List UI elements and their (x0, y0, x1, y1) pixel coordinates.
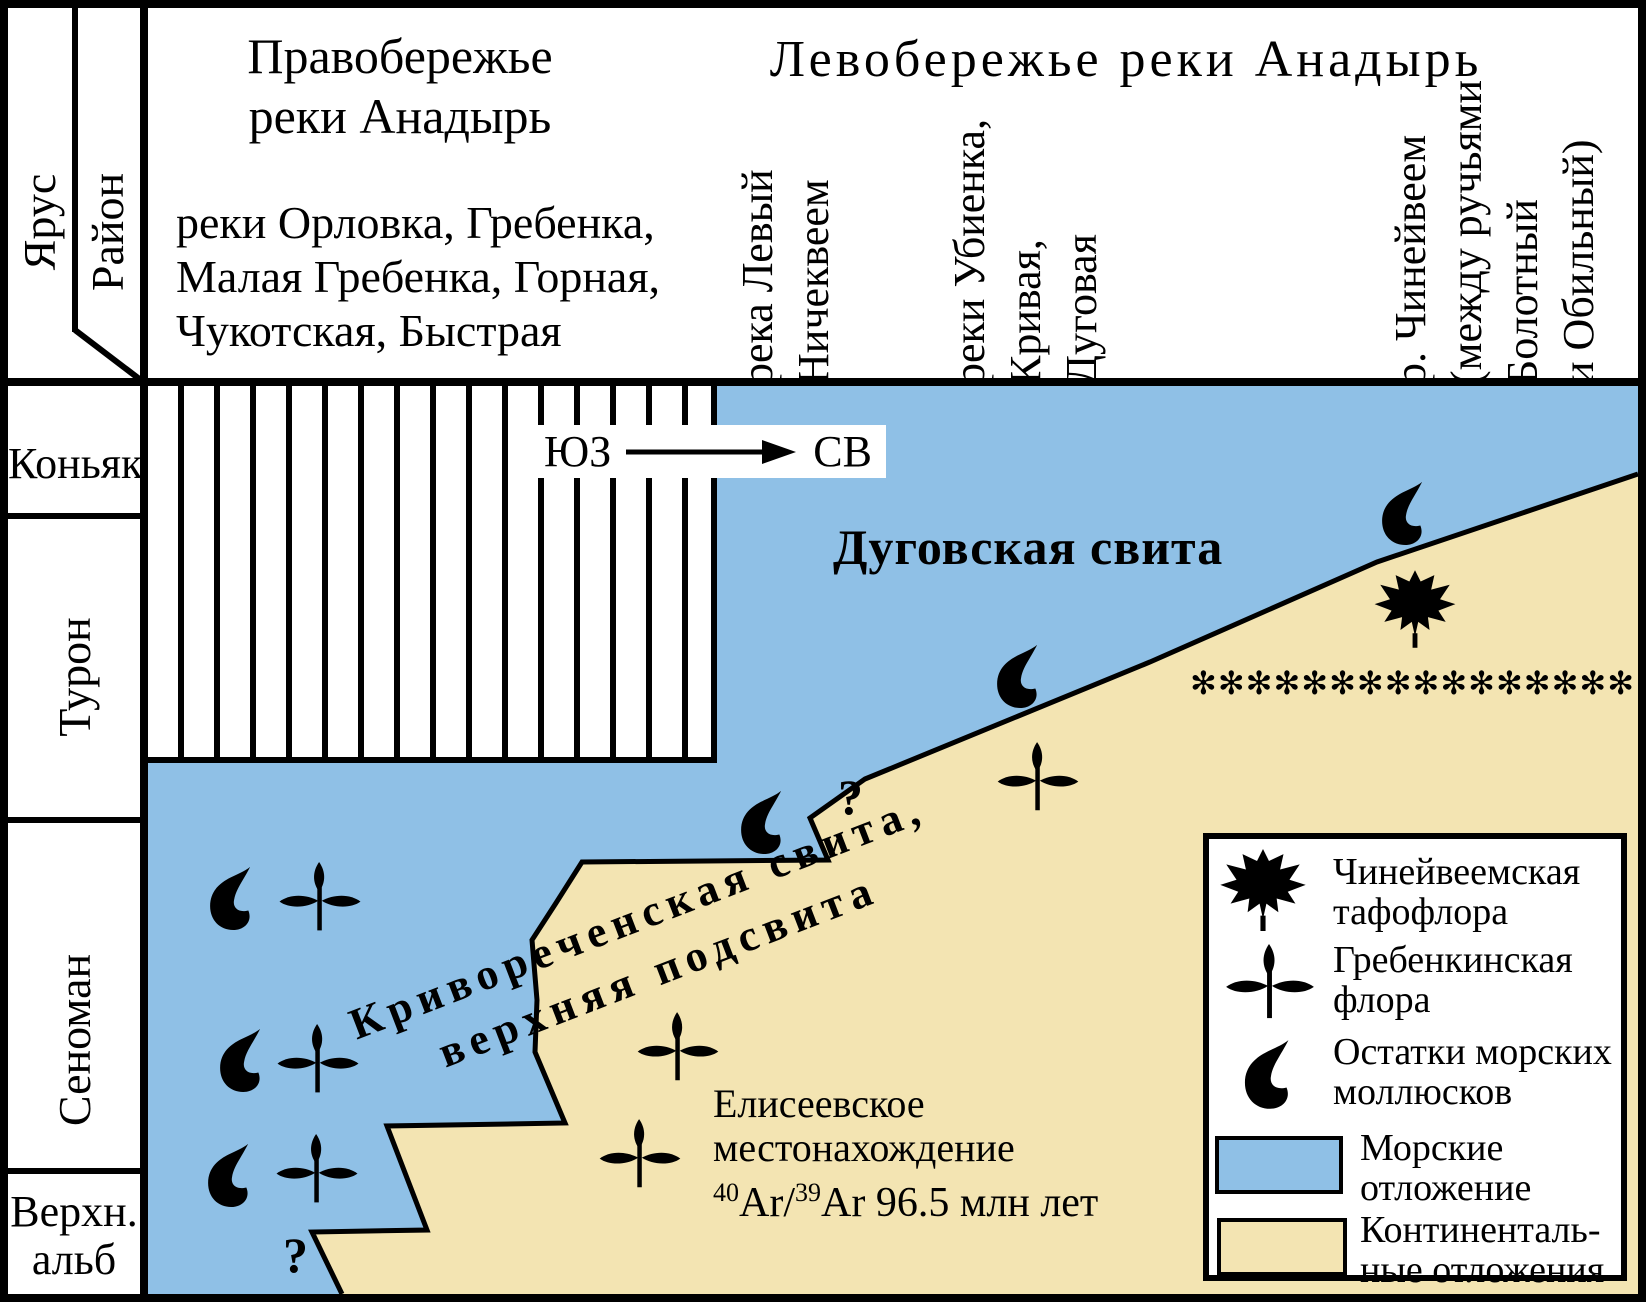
direction-from-label: ЮЗ (544, 426, 611, 477)
mollusk-icon (216, 1028, 274, 1092)
flora-icon (995, 742, 1081, 814)
right-arrow-icon (624, 436, 800, 468)
column-header-line: Ничеквеем (786, 135, 842, 385)
stage-label-line: альб (8, 1236, 140, 1284)
legend-label: Морские (1360, 1128, 1503, 1168)
mollusk-icon (1378, 481, 1436, 545)
direction-to-label: СВ (813, 426, 872, 477)
outer-border-bottom (0, 1294, 1646, 1302)
ar-age-sup1: 40 (713, 1178, 739, 1207)
right-bank-rivers: реки Орловка, Гребенка, Малая Гребенка, … (176, 196, 660, 358)
question-mark-lower: ? (283, 1226, 308, 1284)
right-bank-title: Правобережье реки Анадырь (160, 26, 640, 146)
column-header-line: р. Чинейвеем (1383, 75, 1439, 385)
legend-label: моллюсков (1333, 1072, 1512, 1112)
eliseevskoe-label: Елисеевское местонахождение (713, 1082, 1015, 1170)
right-bank-rivers-line2: Малая Гребенка, Горная, (176, 250, 660, 304)
mollusk-icon (993, 644, 1051, 708)
mollusk-icon (204, 1143, 262, 1207)
continental-swatch (1217, 1218, 1347, 1276)
stage-label-cenoman: Сеноман (48, 922, 98, 1158)
column-header-line: Болотный (1495, 75, 1551, 385)
stage-divider-3 (8, 1168, 140, 1174)
ar-age-base1: Ar/ (739, 1180, 795, 1226)
legend-label: ные отложения (1360, 1250, 1604, 1290)
stage-divider-2 (8, 817, 140, 823)
mollusk-icon (737, 790, 795, 854)
outer-border-top (0, 0, 1646, 8)
eliseevskoe-line1: Елисеевское (713, 1082, 1015, 1126)
flora-icon (269, 1134, 365, 1206)
flora-icon (272, 862, 368, 934)
column-header-chineyveem: р. Чинейвеем (между ручьями Болотный и О… (1383, 75, 1607, 385)
stage-label-konyak: Коньяк (8, 438, 140, 489)
legend-label: тафофлора (1333, 892, 1508, 932)
column-header-line: река Левый (730, 135, 786, 385)
legend-label: Остатки морских (1333, 1032, 1612, 1072)
stage-label-turon: Турон (48, 577, 98, 777)
column-header-line: Кривая, (998, 85, 1054, 385)
stage-label-verkhn-alb: Верхн. альб (8, 1188, 140, 1284)
column-header-line: Дуговая (1054, 85, 1110, 385)
ar-age-label: 40Ar/39Ar 96.5 млн лет (713, 1178, 1098, 1227)
mollusk-icon (206, 866, 264, 930)
column-header-line: и Обильный) (1551, 75, 1607, 385)
right-bank-rivers-line3: Чукотская, Быстрая (176, 304, 660, 358)
maple-leaf-icon (1211, 849, 1315, 931)
column-header-ubienka: реки Убиенка, Кривая, Дуговая (942, 85, 1110, 385)
yarus-column-label: Ярус (13, 142, 63, 302)
eliseevskoe-line2: местонахождение (713, 1126, 1015, 1170)
flora-icon (635, 1012, 721, 1084)
outer-border-right (1638, 0, 1646, 1302)
direction-band: ЮЗ СВ (530, 425, 886, 478)
right-bank-title-line1: Правобережье (160, 26, 640, 86)
right-bank-rivers-line1: реки Орловка, Гребенка, (176, 196, 660, 250)
mollusk-icon (1243, 1039, 1301, 1109)
legend-label: отложение (1360, 1168, 1531, 1208)
ar-age-sup2: 39 (795, 1178, 821, 1207)
raion-column-label: Район (81, 147, 131, 317)
flora-icon (1222, 944, 1318, 1022)
stage-divider-1 (8, 513, 140, 519)
column-header-line: (между ручьями (1439, 75, 1495, 385)
stage-label-line: Верхн. (8, 1188, 140, 1236)
legend-label: Гребенкинская (1333, 940, 1573, 980)
stratigraphic-correlation-diagram: ЮЗ СВ Ярус Район Правобережье реки Анады… (0, 0, 1646, 1302)
dugovskaya-formation-label: Дуговская свита (833, 518, 1223, 576)
legend-label: Континенталь- (1360, 1210, 1601, 1250)
column-header-line: реки Убиенка, (942, 85, 998, 385)
maple-leaf-icon (1373, 570, 1457, 648)
right-bank-title-line2: реки Анадырь (160, 86, 640, 146)
flora-icon (270, 1024, 366, 1096)
legend-label: Чинейвеемская (1333, 852, 1580, 892)
flora-icon (597, 1119, 683, 1191)
marine-swatch (1215, 1136, 1343, 1194)
question-mark-upper: ? (838, 768, 863, 826)
legend-label: флора (1333, 980, 1431, 1020)
tuff-asterisk-row: ✻✻✻✻✻✻✻✻✻✻✻✻✻✻✻✻ (1190, 664, 1635, 702)
ar-age-base2: Ar 96.5 млн лет (821, 1180, 1098, 1226)
column-header-nichekveem: река Левый Ничеквеем (730, 135, 842, 385)
